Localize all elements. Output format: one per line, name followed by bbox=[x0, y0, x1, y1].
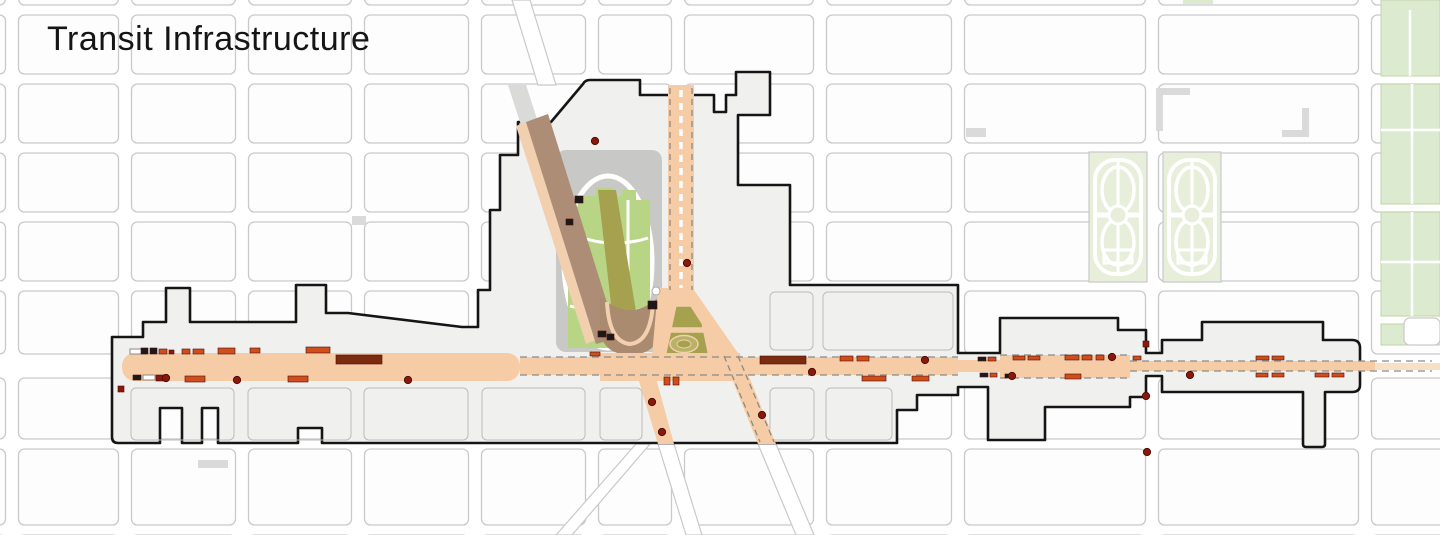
map-canvas: Transit Infrastructure bbox=[0, 0, 1440, 535]
transit-map-svg bbox=[0, 0, 1440, 535]
page-title: Transit Infrastructure bbox=[47, 20, 370, 59]
